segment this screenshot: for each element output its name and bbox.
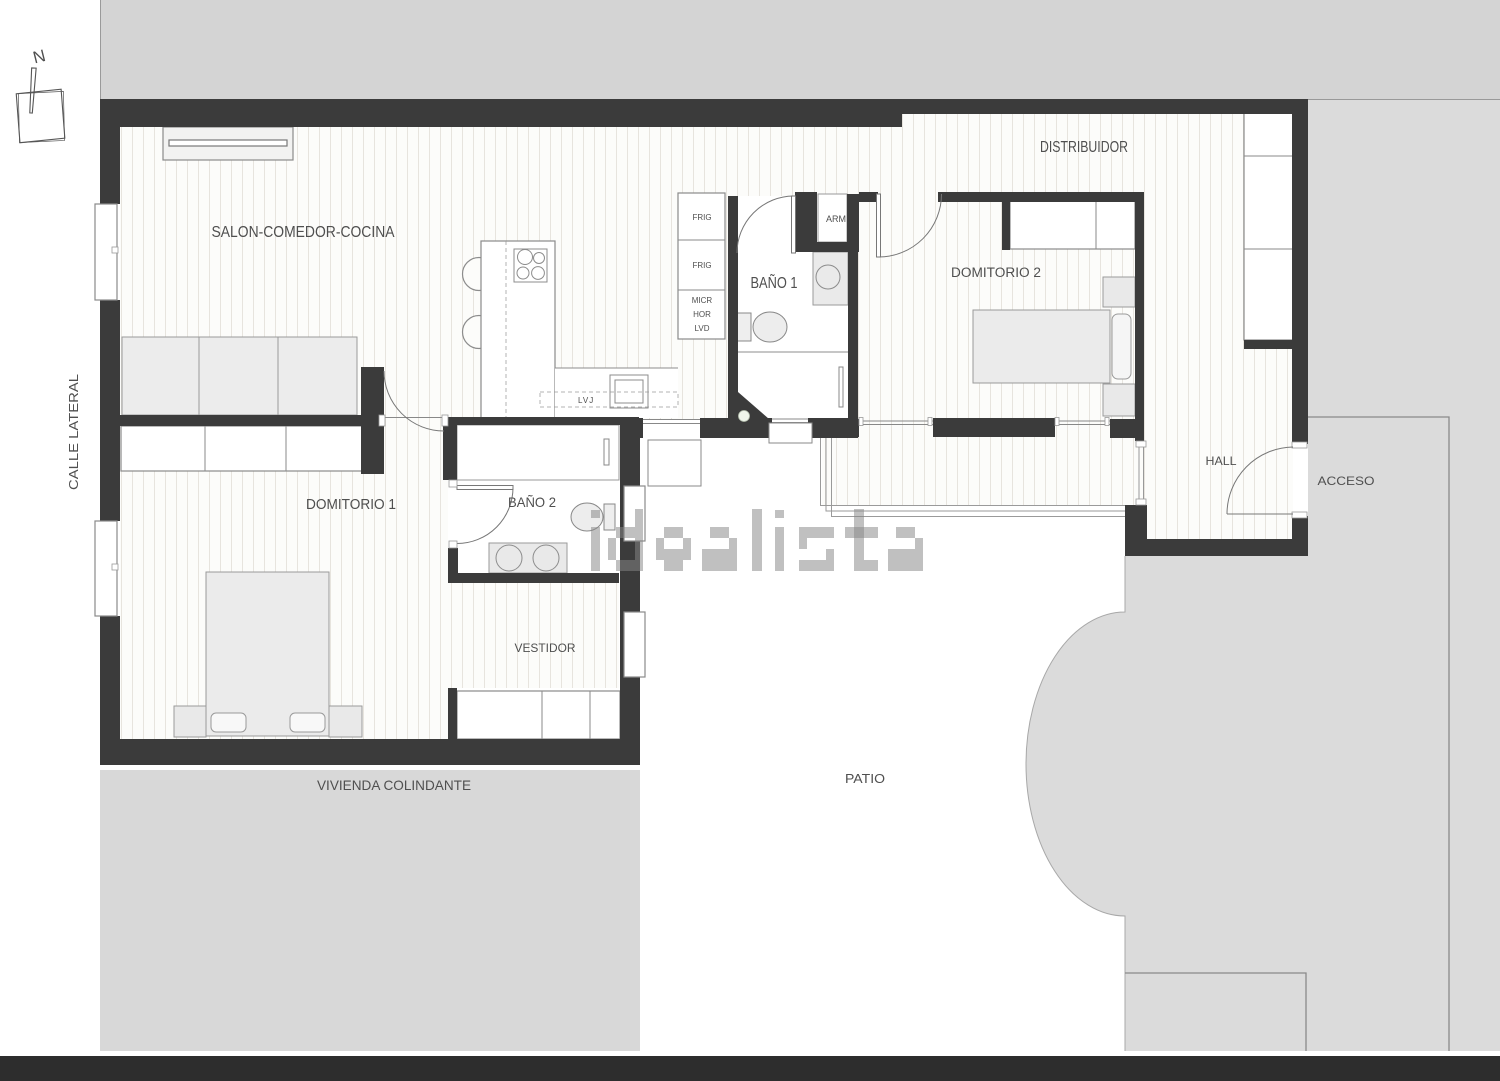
svg-text:LVD: LVD (695, 324, 710, 333)
svg-text:SALON-COMEDOR-COCINA: SALON-COMEDOR-COCINA (212, 224, 395, 241)
svg-text:DOMITORIO 2: DOMITORIO 2 (951, 265, 1041, 280)
svg-text:HOR: HOR (693, 310, 711, 319)
svg-text:VESTIDOR: VESTIDOR (515, 641, 576, 655)
svg-text:DOMITORIO 1: DOMITORIO 1 (306, 497, 396, 513)
svg-text:MICR: MICR (692, 296, 713, 305)
svg-text:DISTRIBUIDOR: DISTRIBUIDOR (1040, 139, 1128, 156)
svg-text:BAÑO 2: BAÑO 2 (508, 494, 556, 510)
svg-text:ACCESO: ACCESO (1318, 474, 1375, 488)
svg-text:HALL: HALL (1206, 454, 1237, 468)
svg-text:FRIG: FRIG (692, 213, 711, 222)
svg-text:ARM: ARM (826, 214, 846, 224)
svg-text:VIVIENDA COLINDANTE: VIVIENDA COLINDANTE (317, 777, 471, 793)
svg-text:LVJ: LVJ (578, 396, 594, 405)
svg-text:FRIG: FRIG (692, 261, 711, 270)
svg-text:CALLE LATERAL: CALLE LATERAL (66, 374, 81, 490)
svg-text:BAÑO 1: BAÑO 1 (751, 272, 798, 292)
svg-text:PATIO: PATIO (845, 772, 885, 786)
